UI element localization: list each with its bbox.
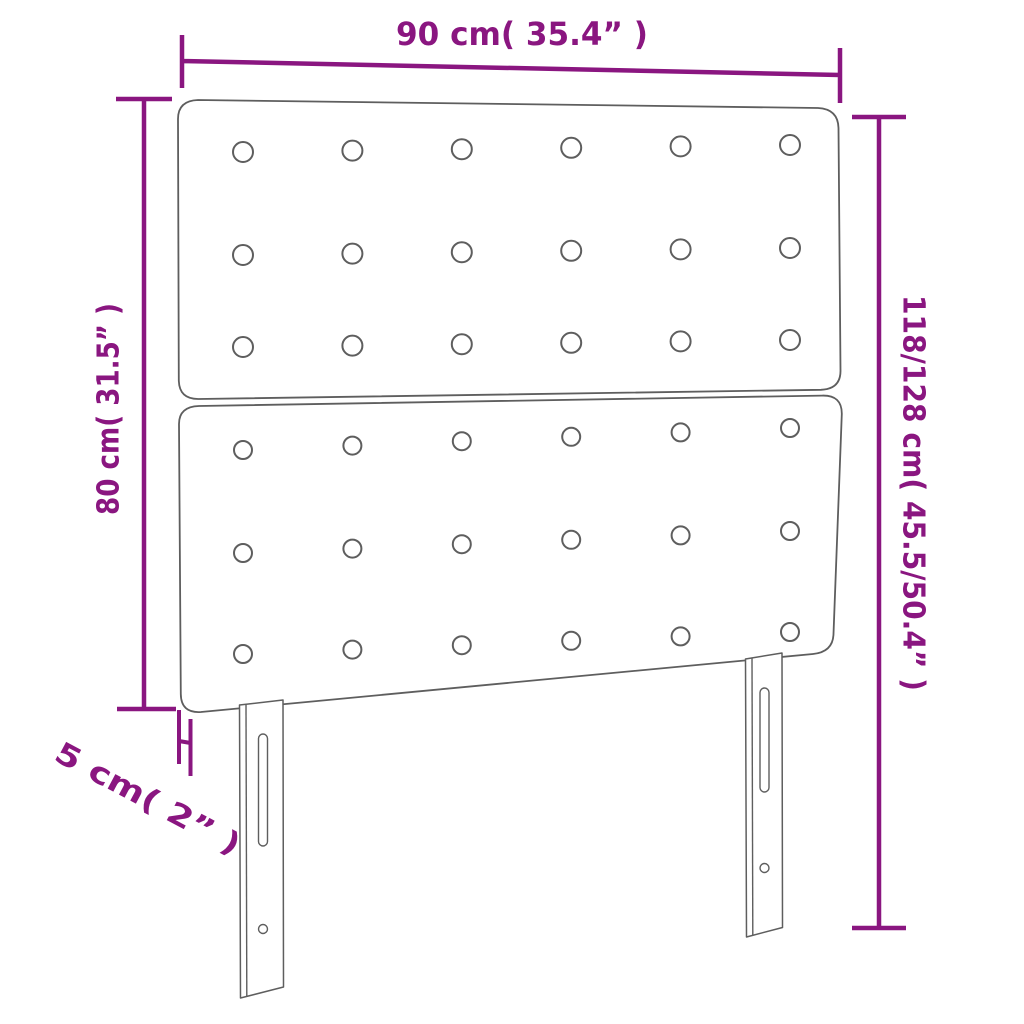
headboard-lower-panel: [179, 396, 842, 713]
tuft-button: [561, 138, 581, 158]
right-leg-edge-line: [752, 658, 753, 935]
tuft-button: [671, 239, 691, 259]
headboard: [178, 100, 842, 998]
tuft-button: [562, 531, 580, 549]
tuft-button: [234, 645, 252, 663]
tuft-button: [561, 333, 581, 353]
tuft-button: [234, 544, 252, 562]
panel-height-dimension-label: 80 cm( 31.5” ): [92, 303, 127, 515]
width-dimension: 90 cm( 35.4” ): [182, 15, 840, 103]
tuft-button: [672, 423, 690, 441]
tuft-button: [562, 428, 580, 446]
right-leg-body: [746, 653, 783, 937]
tuft-button: [342, 244, 362, 264]
total-height-dimension: 118/128 cm( 45.5/50.4” ): [852, 117, 931, 928]
tuft-button: [343, 540, 361, 558]
tuft-button: [562, 632, 580, 650]
tuft-button: [453, 432, 471, 450]
depth-dimension-label: 5 cm( 2” ): [49, 736, 246, 863]
diagram-canvas: 90 cm( 35.4” ) 80 cm( 31.5” ) 118/128 cm…: [0, 0, 1024, 1024]
left-leg: [240, 700, 284, 998]
tuft-button: [452, 242, 472, 262]
tuft-button: [453, 535, 471, 553]
tuft-button: [233, 245, 253, 265]
left-leg-edge-line: [246, 704, 247, 996]
depth-dimension-lines: [179, 710, 191, 776]
tuft-button: [342, 336, 362, 356]
tuft-button: [780, 135, 800, 155]
tuft-button: [342, 141, 362, 161]
headboard-upper-panel: [178, 100, 841, 399]
tuft-button: [780, 330, 800, 350]
tuft-button: [233, 142, 253, 162]
total-height-dimension-label: 118/128 cm( 45.5/50.4” ): [896, 295, 931, 691]
tuft-button: [452, 139, 472, 159]
depth-dimension: 5 cm( 2” ): [49, 710, 246, 863]
width-dimension-label: 90 cm( 35.4” ): [396, 15, 648, 53]
tuft-button: [781, 623, 799, 641]
tuft-button: [672, 627, 690, 645]
tuft-button: [234, 441, 252, 459]
tuft-button: [452, 334, 472, 354]
panel-height-dimension: 80 cm( 31.5” ): [92, 99, 177, 709]
tuft-button: [343, 437, 361, 455]
tuft-button: [343, 641, 361, 659]
tuft-button: [781, 522, 799, 540]
tuft-button: [671, 331, 691, 351]
tuft-button: [233, 337, 253, 357]
tuft-button: [780, 238, 800, 258]
tuft-button: [671, 136, 691, 156]
headboard-dimension-diagram: 90 cm( 35.4” ) 80 cm( 31.5” ) 118/128 cm…: [0, 0, 1024, 1024]
tuft-button: [561, 241, 581, 261]
tuft-button: [672, 526, 690, 544]
tuft-button: [781, 419, 799, 437]
tuft-button: [453, 636, 471, 654]
right-leg: [746, 653, 783, 937]
